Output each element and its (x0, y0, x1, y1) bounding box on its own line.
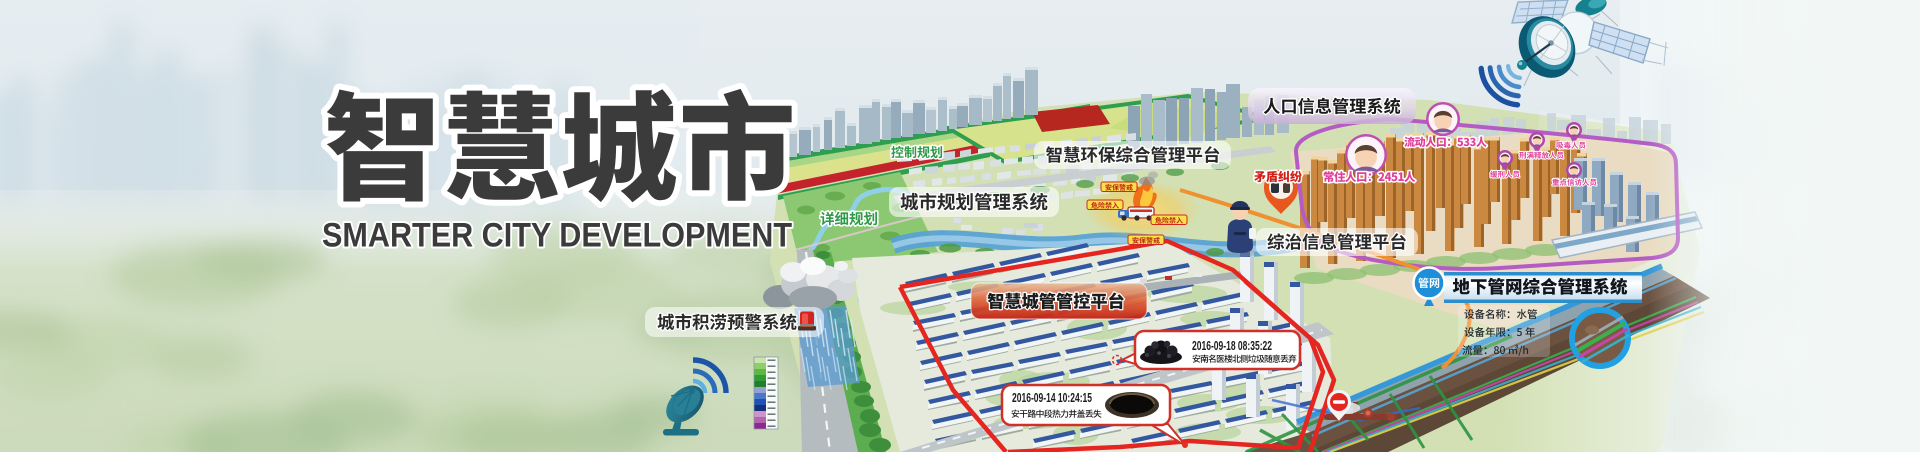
svg-text:2016-09-14 10:24:15: 2016-09-14 10:24:15 (1012, 391, 1092, 405)
svg-text:2016-09-18 08:35:22: 2016-09-18 08:35:22 (1192, 339, 1272, 353)
svg-text:SMARTER CITY DEVELOPMENT: SMARTER CITY DEVELOPMENT (322, 217, 792, 255)
